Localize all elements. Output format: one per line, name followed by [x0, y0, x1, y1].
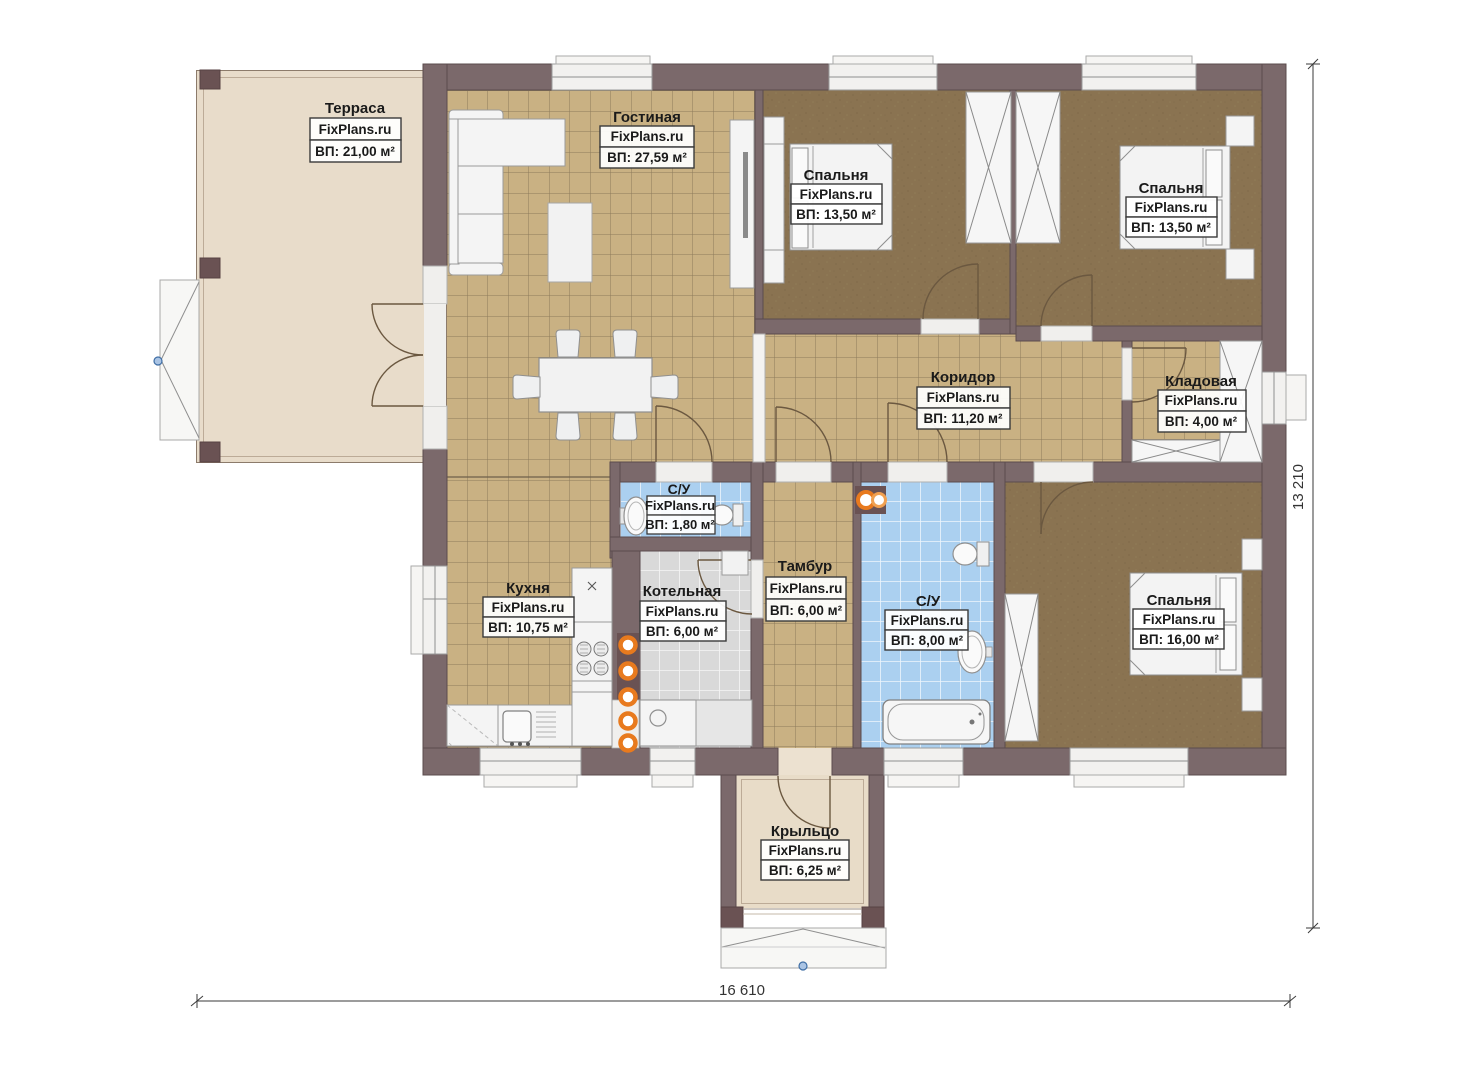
svg-text:FixPlans.ru: FixPlans.ru: [319, 122, 392, 137]
svg-text:Кладовая: Кладовая: [1165, 373, 1237, 390]
svg-text:Тамбур: Тамбур: [778, 558, 832, 575]
svg-text:Крыльцо: Крыльцо: [771, 823, 839, 840]
svg-text:ВП: 13,50 м²: ВП: 13,50 м²: [796, 207, 876, 222]
svg-text:FixPlans.ru: FixPlans.ru: [770, 581, 843, 596]
svg-text:ВП: 6,00 м²: ВП: 6,00 м²: [770, 603, 843, 618]
svg-text:ВП: 11,20 м²: ВП: 11,20 м²: [924, 411, 1003, 426]
svg-text:ВП: 4,00 м²: ВП: 4,00 м²: [1165, 414, 1238, 429]
svg-text:ВП: 8,00 м²: ВП: 8,00 м²: [891, 633, 964, 648]
svg-text:FixPlans.ru: FixPlans.ru: [1135, 200, 1208, 215]
svg-text:FixPlans.ru: FixPlans.ru: [1143, 612, 1216, 627]
svg-text:Кухня: Кухня: [506, 580, 550, 597]
svg-text:13 210: 13 210: [1290, 464, 1307, 510]
svg-text:Котельная: Котельная: [643, 583, 722, 600]
svg-text:ВП: 1,80 м²: ВП: 1,80 м²: [645, 517, 715, 532]
svg-text:ВП: 16,00 м²: ВП: 16,00 м²: [1139, 632, 1219, 647]
svg-text:Спальня: Спальня: [804, 167, 869, 184]
svg-text:ВП: 21,00 м²: ВП: 21,00 м²: [315, 144, 395, 159]
svg-text:Коридор: Коридор: [931, 369, 996, 386]
svg-text:Гостиная: Гостиная: [613, 109, 681, 126]
svg-text:FixPlans.ru: FixPlans.ru: [646, 604, 719, 619]
svg-text:ВП: 10,75 м²: ВП: 10,75 м²: [488, 620, 568, 635]
svg-text:FixPlans.ru: FixPlans.ru: [800, 187, 873, 202]
svg-text:Спальня: Спальня: [1139, 180, 1204, 197]
svg-text:FixPlans.ru: FixPlans.ru: [611, 129, 684, 144]
svg-text:FixPlans.ru: FixPlans.ru: [769, 843, 842, 858]
svg-text:Терраса: Терраса: [325, 100, 386, 117]
svg-text:FixPlans.ru: FixPlans.ru: [645, 498, 715, 513]
svg-text:ВП: 13,50 м²: ВП: 13,50 м²: [1131, 220, 1211, 235]
svg-text:ВП: 6,25 м²: ВП: 6,25 м²: [769, 863, 842, 878]
svg-text:ВП: 6,00 м²: ВП: 6,00 м²: [646, 624, 719, 639]
svg-text:FixPlans.ru: FixPlans.ru: [1165, 393, 1238, 408]
svg-text:С/У: С/У: [668, 481, 691, 497]
svg-text:FixPlans.ru: FixPlans.ru: [927, 390, 1000, 405]
svg-text:Спальня: Спальня: [1147, 592, 1212, 609]
svg-text:FixPlans.ru: FixPlans.ru: [891, 613, 964, 628]
svg-text:16 610: 16 610: [719, 982, 765, 999]
svg-text:С/У: С/У: [916, 593, 941, 610]
svg-text:ВП: 27,59 м²: ВП: 27,59 м²: [607, 150, 687, 165]
svg-text:FixPlans.ru: FixPlans.ru: [492, 600, 565, 615]
